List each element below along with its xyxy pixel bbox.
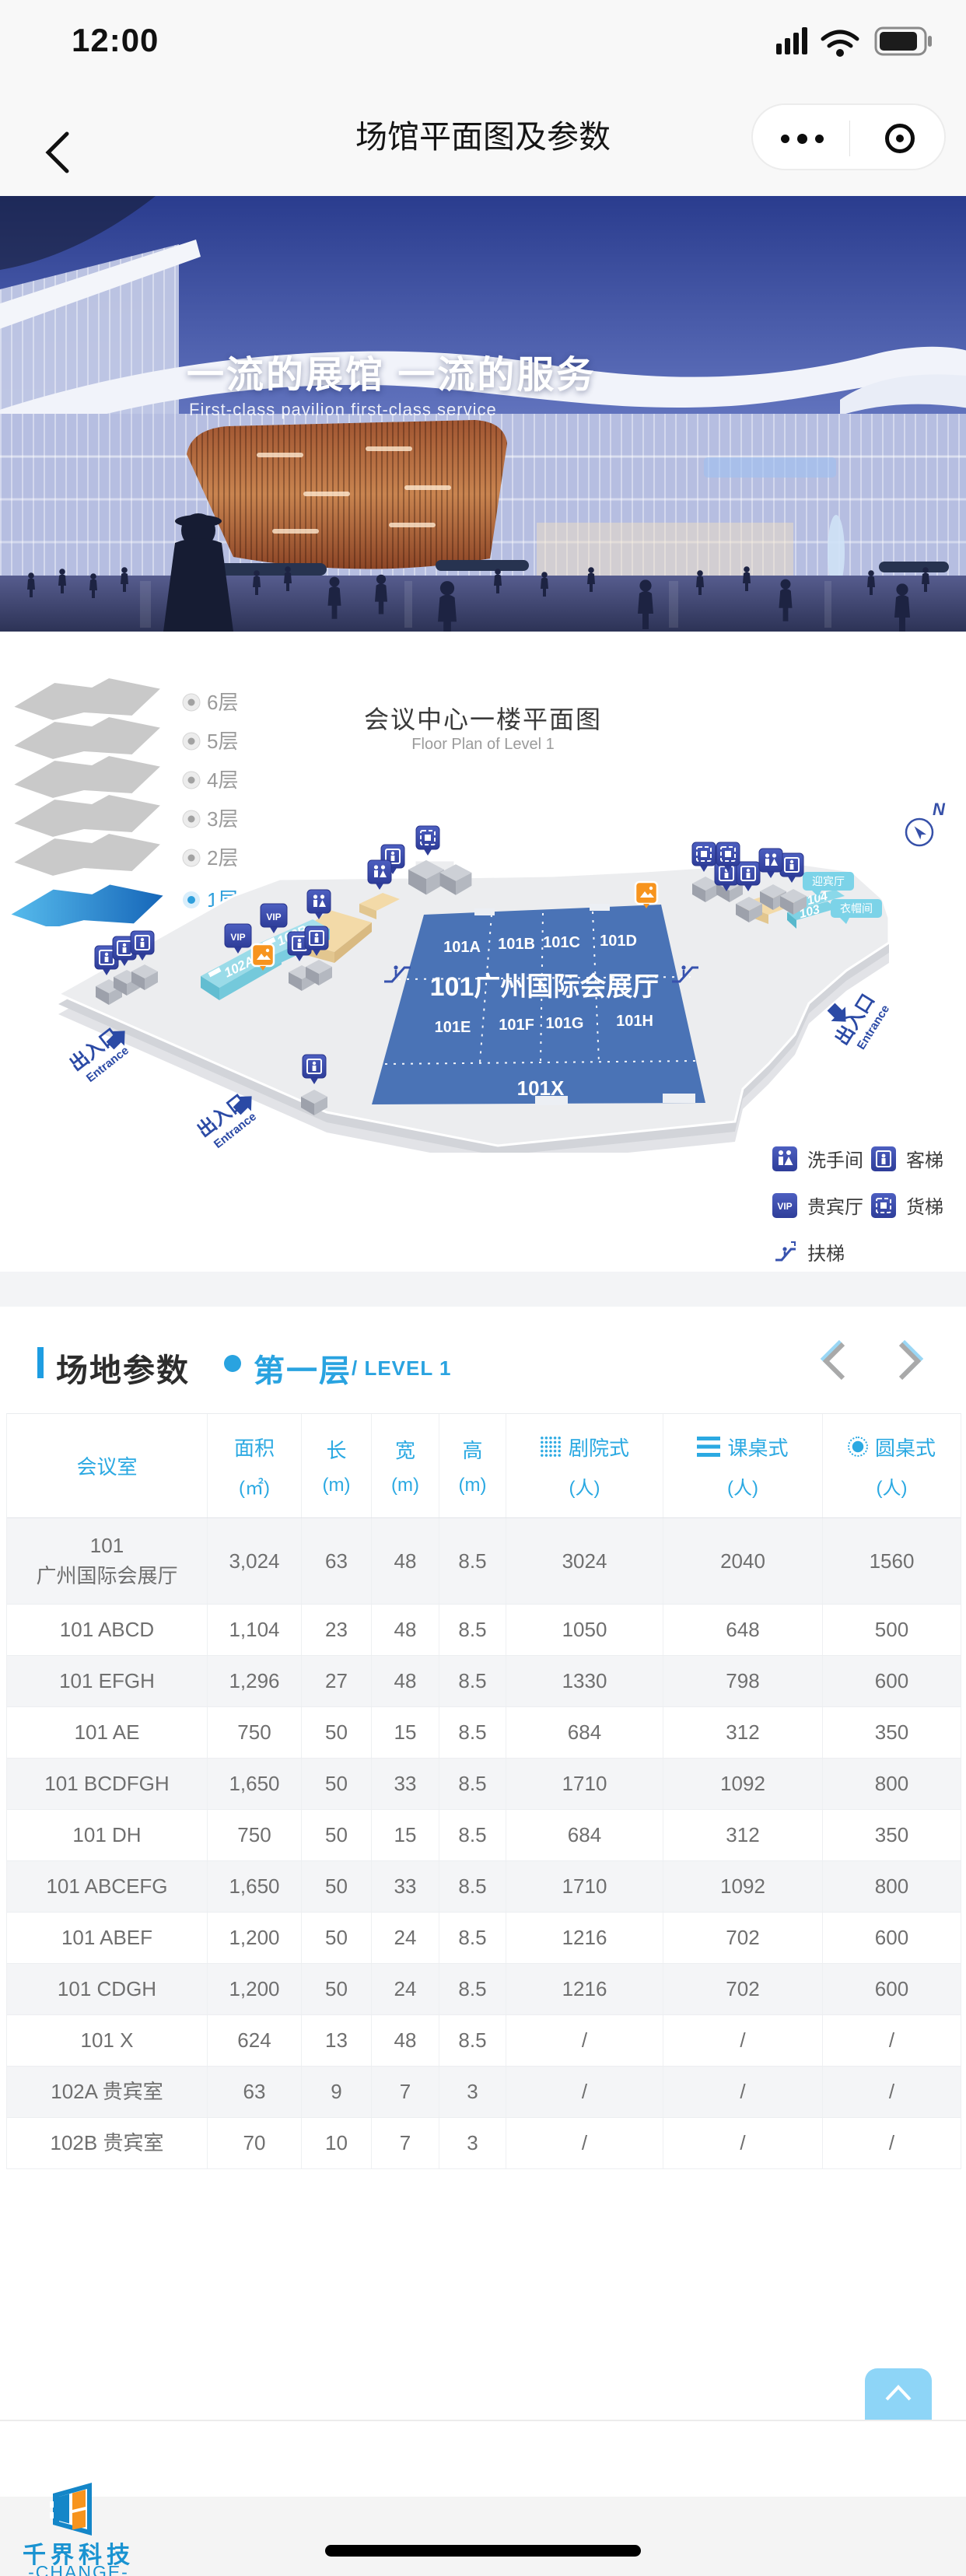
value-cell: 15 (372, 1810, 439, 1860)
room-name-cell: 102B 贵宾室 (7, 2118, 208, 2168)
section-separator (0, 1272, 966, 1307)
svg-text:101A: 101A (443, 939, 481, 956)
value-cell: 70 (208, 2118, 302, 2168)
freight-elevator-pins (416, 826, 740, 872)
map-legend: 洗手间 客梯 VIP 贵宾厅 (766, 1145, 961, 1159)
table-row: 101 ABEF1,20050248.51216702600 (7, 1913, 961, 1964)
theater-style-icon (540, 1435, 562, 1458)
value-cell: 1330 (506, 1656, 663, 1706)
params-section-title: 场地参数 (56, 1344, 190, 1391)
svg-text:VIP: VIP (777, 1201, 792, 1212)
table-row: 101 EFGH1,29627488.51330798600 (7, 1656, 961, 1707)
value-cell: 600 (823, 1964, 961, 2014)
table-body: 101 广州国际会展厅3,02463488.5302420401560101 A… (7, 1518, 961, 2169)
svg-text:101C: 101C (543, 934, 580, 951)
passenger-elevator-icon (871, 1146, 896, 1171)
value-cell: 50 (302, 1707, 372, 1758)
header-banquet-style: 圆桌式 (人) (823, 1414, 961, 1517)
venue-parameters-table: 会议室 面积 (㎡) 长 (m) 宽 (m) 高 (m) (6, 1413, 961, 2169)
header-length: 长 (m) (302, 1414, 372, 1517)
value-cell: / (663, 2118, 823, 2168)
wifi-icon (823, 32, 857, 46)
value-cell: 750 (208, 1810, 302, 1860)
legend-passenger-elevator: 客梯 (871, 1145, 943, 1172)
table-row: 101 广州国际会展厅3,02463488.5302420401560 (7, 1518, 961, 1605)
value-cell: 702 (663, 1913, 823, 1963)
value-cell: 63 (208, 2067, 302, 2117)
value-cell: 24 (372, 1913, 439, 1963)
value-cell: / (663, 2015, 823, 2066)
value-cell: 1216 (506, 1964, 663, 2014)
value-cell: / (823, 2118, 961, 2168)
svg-text:101H: 101H (616, 1013, 653, 1030)
restroom-icon (772, 1146, 797, 1171)
svg-text:6层: 6层 (207, 691, 238, 714)
status-time: 12:00 (72, 22, 159, 59)
svg-text:迎宾厅: 迎宾厅 (812, 875, 845, 887)
value-cell: 1092 (663, 1861, 823, 1912)
venue-parameters-card: 场地参数 第一层 / LEVEL 1 会议室 面积 (㎡) 长 (m) (0, 1307, 966, 2421)
room-name-cell: 101 ABEF (7, 1913, 208, 1963)
table-row: 102A 贵宾室63973/// (7, 2067, 961, 2118)
company-logo-icon (48, 2480, 109, 2539)
hero-title: 一流的展馆 一流的服务 (187, 344, 596, 398)
vip-icon: VIP (772, 1193, 797, 1218)
close-circle-button[interactable] (885, 124, 915, 153)
accent-bar (37, 1347, 44, 1378)
svg-text:N: N (933, 800, 946, 819)
value-cell: 2040 (663, 1518, 823, 1604)
svg-text:101F: 101F (499, 1017, 534, 1034)
prev-floor-button[interactable] (815, 1339, 854, 1383)
value-cell: 1,200 (208, 1964, 302, 2014)
value-cell: 1050 (506, 1605, 663, 1655)
legend-escalator: 扶梯 (772, 1238, 845, 1265)
next-floor-button[interactable] (890, 1339, 929, 1383)
page-footer: 千界科技 -CHANGE- (0, 2497, 966, 2576)
value-cell: 624 (208, 2015, 302, 2066)
capsule-divider (849, 121, 850, 156)
value-cell: 27 (302, 1656, 372, 1706)
value-cell: 33 (372, 1861, 439, 1912)
compass-icon: N (906, 800, 946, 845)
value-cell: 798 (663, 1656, 823, 1706)
room-name-cell: 101 ABCD (7, 1605, 208, 1655)
value-cell: 50 (302, 1913, 372, 1963)
value-cell: 350 (823, 1810, 961, 1860)
header-area: 面积 (㎡) (208, 1414, 302, 1517)
value-cell: 1092 (663, 1759, 823, 1809)
svg-text:101E: 101E (435, 1019, 471, 1036)
status-bar: 12:00 (0, 0, 966, 78)
value-cell: 600 (823, 1913, 961, 1963)
nav-bar: 场馆平面图及参数 (0, 78, 966, 196)
table-row: 101 DH75050158.5684312350 (7, 1810, 961, 1861)
table-row: 101 CDGH1,20050248.51216702600 (7, 1964, 961, 2015)
value-cell: 8.5 (439, 1656, 506, 1706)
value-cell: 8.5 (439, 2015, 506, 2066)
value-cell: 800 (823, 1759, 961, 1809)
value-cell: 8.5 (439, 1861, 506, 1912)
hero-banner: 一流的展馆 一流的服务 First-class pavilion first-c… (0, 196, 966, 632)
value-cell: 3 (439, 2067, 506, 2117)
value-cell: 1,296 (208, 1656, 302, 1706)
value-cell: 1216 (506, 1913, 663, 1963)
photo-marker-101[interactable] (635, 882, 657, 908)
room-name-cell: 101 DH (7, 1810, 208, 1860)
home-indicator (325, 2545, 641, 2557)
table-row: 101 ABCEFG1,65050338.517101092800 (7, 1861, 961, 1913)
header-width: 宽 (m) (372, 1414, 439, 1517)
value-cell: 48 (372, 1656, 439, 1706)
value-cell: 8.5 (439, 1518, 506, 1604)
room-name-cell: 101 BCDFGH (7, 1759, 208, 1809)
hall-101 (372, 905, 705, 1104)
value-cell: 48 (372, 1518, 439, 1604)
value-cell: 312 (663, 1707, 823, 1758)
value-cell: 684 (506, 1810, 663, 1860)
value-cell: / (506, 2067, 663, 2117)
chevron-up-icon (887, 2387, 910, 2399)
value-cell: 1560 (823, 1518, 961, 1604)
battery-icon (876, 28, 932, 54)
value-cell: 50 (302, 1759, 372, 1809)
signal-icon (776, 27, 807, 54)
hero-subtitle: First-class pavilion first-class service (189, 400, 497, 420)
value-cell: 1,650 (208, 1861, 302, 1912)
value-cell: / (506, 2118, 663, 2168)
accent-dot (224, 1355, 241, 1372)
more-button[interactable] (781, 135, 835, 144)
value-cell: 800 (823, 1861, 961, 1912)
value-cell: / (823, 2015, 961, 2066)
floor-6[interactable]: 6层 (12, 677, 238, 721)
current-floor-label: 第一层 (254, 1346, 352, 1391)
escalator-icon (772, 1240, 797, 1265)
header-classroom-style: 课桌式 (人) (663, 1414, 823, 1517)
svg-text:5层: 5层 (207, 730, 238, 753)
value-cell: 1,650 (208, 1759, 302, 1809)
classroom-style-icon (697, 1437, 720, 1457)
value-cell: 50 (302, 1861, 372, 1912)
hall-title: 101广州国际会展厅 (430, 972, 660, 1002)
entrance-glow (537, 523, 793, 579)
back-to-top-button[interactable] (865, 2368, 932, 2420)
room-name-cell: 101 AE (7, 1707, 208, 1758)
room-name-cell: 101 ABCEFG (7, 1861, 208, 1912)
banquet-style-icon (848, 1437, 868, 1457)
value-cell: 1,200 (208, 1913, 302, 1963)
value-cell: 8.5 (439, 1913, 506, 1963)
value-cell: 8.5 (439, 1810, 506, 1860)
value-cell: 1710 (506, 1759, 663, 1809)
value-cell: 702 (663, 1964, 823, 2014)
value-cell: / (823, 2067, 961, 2117)
value-cell: 750 (208, 1707, 302, 1758)
legend-freight-elevator: 货梯 (871, 1192, 943, 1219)
value-cell: 600 (823, 1656, 961, 1706)
value-cell: 13 (302, 2015, 372, 2066)
header-meeting-room: 会议室 (7, 1414, 208, 1517)
value-cell: 7 (372, 2067, 439, 2117)
table-row: 101 AE75050158.5684312350 (7, 1707, 961, 1759)
value-cell: 3,024 (208, 1518, 302, 1604)
value-cell: 312 (663, 1810, 823, 1860)
entrance-left: 出入口 Entrance (66, 1024, 133, 1087)
status-icons (776, 23, 940, 59)
svg-text:101D: 101D (600, 933, 637, 950)
floor-5[interactable]: 5层 (12, 716, 238, 760)
value-cell: 1710 (506, 1861, 663, 1912)
building-sign (704, 457, 836, 478)
mini-program-page: 12:00 场馆平面图及参数 (0, 0, 966, 2576)
value-cell: / (506, 2015, 663, 2066)
value-cell: 8.5 (439, 1707, 506, 1758)
room-name-cell: 101 广州国际会展厅 (7, 1518, 208, 1604)
value-cell: 15 (372, 1707, 439, 1758)
value-cell: 350 (823, 1707, 961, 1758)
floor-plan-section: 会议中心一楼平面图 Floor Plan of Level 1 6层 5层 (0, 632, 966, 1272)
entrance-bottom: 出入口 Entrance (194, 1089, 261, 1153)
value-cell: 63 (302, 1518, 372, 1604)
legend-restroom: 洗手间 (772, 1145, 863, 1172)
room-name-cell: 101 CDGH (7, 1964, 208, 2014)
value-cell: 9 (302, 2067, 372, 2117)
wifi-dot (836, 49, 844, 57)
value-cell: 48 (372, 1605, 439, 1655)
value-cell: 48 (372, 2015, 439, 2066)
room-name-cell: 101 EFGH (7, 1656, 208, 1706)
value-cell: 648 (663, 1605, 823, 1655)
value-cell: 684 (506, 1707, 663, 1758)
value-cell: 3024 (506, 1518, 663, 1604)
table-row: 101 ABCD1,10423488.51050648500 (7, 1605, 961, 1656)
floor-plan: VIP (0, 778, 966, 1153)
header-theater-style: 剧院式 (人) (506, 1414, 663, 1517)
value-cell: 8.5 (439, 1605, 506, 1655)
header-height: 高 (m) (439, 1414, 506, 1517)
value-cell: 8.5 (439, 1964, 506, 2014)
room-name-cell: 102A 贵宾室 (7, 2067, 208, 2117)
value-cell: 24 (372, 1964, 439, 2014)
value-cell: 8.5 (439, 1759, 506, 1809)
value-cell: 23 (302, 1605, 372, 1655)
value-cell: 33 (372, 1759, 439, 1809)
svg-text:衣帽间: 衣帽间 (840, 902, 873, 915)
value-cell: 50 (302, 1810, 372, 1860)
table-header-row: 会议室 面积 (㎡) 长 (m) 宽 (m) 高 (m) (7, 1414, 961, 1518)
value-cell: / (663, 2067, 823, 2117)
value-cell: 500 (823, 1605, 961, 1655)
value-cell: 10 (302, 2118, 372, 2168)
table-row: 101 BCDFGH1,65050338.517101092800 (7, 1759, 961, 1810)
svg-text:101G: 101G (546, 1015, 584, 1032)
table-row: 102B 贵宾室701073/// (7, 2118, 961, 2169)
company-name-en: -CHANGE- (5, 2562, 152, 2576)
current-floor-level: / LEVEL 1 (352, 1356, 451, 1381)
legend-vip: VIP 贵宾厅 (772, 1192, 863, 1219)
svg-text:101B: 101B (498, 936, 535, 953)
value-cell: 7 (372, 2118, 439, 2168)
table-row: 101 X62413488.5/// (7, 2015, 961, 2067)
value-cell: 1,104 (208, 1605, 302, 1655)
freight-elevator-icon (871, 1193, 896, 1218)
room-name-cell: 101 X (7, 2015, 208, 2066)
value-cell: 50 (302, 1964, 372, 2014)
miniprogram-capsule (751, 103, 946, 170)
value-cell: 3 (439, 2118, 506, 2168)
room-101x-label: 101X (517, 1076, 565, 1100)
photo-marker-102[interactable] (252, 944, 274, 971)
